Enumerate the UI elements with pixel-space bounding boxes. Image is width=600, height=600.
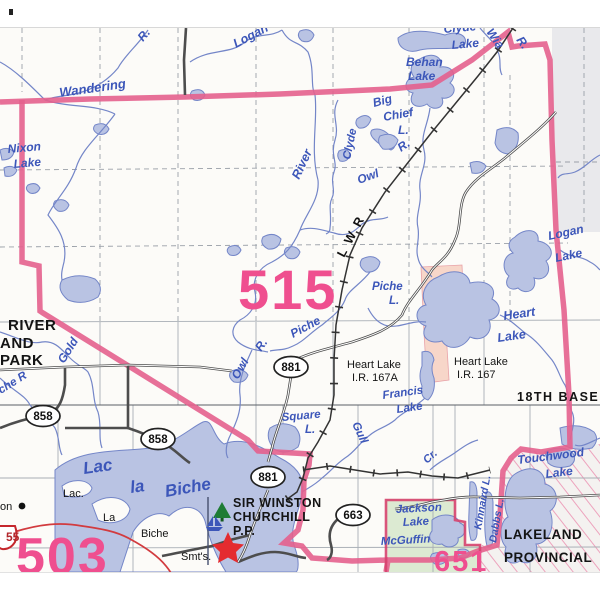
place-label: LAKELAND	[504, 527, 582, 542]
place-label: I.R. 167	[457, 369, 496, 381]
water-label: Behan	[406, 55, 443, 69]
water-label: Lake	[403, 516, 430, 529]
bottom-margin	[0, 573, 600, 600]
road-shield-881[interactable]: 881	[274, 357, 308, 378]
place-label: PARK	[0, 352, 43, 369]
place-label: Lac.	[63, 488, 84, 500]
place-label: I.R. 167A	[352, 372, 399, 384]
water-label: L.	[398, 123, 409, 137]
map-sheet-number: 515	[238, 258, 337, 321]
place-label: Smt's.	[181, 551, 211, 563]
shield-number: 881	[258, 472, 278, 484]
map-canvas: 515503651 WanderingR.LoganBehanLakeBigCh…	[0, 0, 600, 600]
place-label: Heart Lake	[454, 356, 508, 368]
water-label: L.	[305, 424, 315, 436]
shield-number: 858	[33, 411, 53, 423]
highway-55-number: 55	[6, 530, 20, 544]
place-label: CHURCHILL	[233, 510, 310, 524]
water-label: Piche	[372, 281, 403, 293]
shield-number: 858	[148, 434, 168, 446]
map-viewport[interactable]: 515503651 WanderingR.LoganBehanLakeBigCh…	[0, 0, 600, 600]
place-label: PROVINCIAL	[504, 550, 592, 565]
scan-artifact	[9, 9, 13, 15]
water-label: Jackson	[396, 502, 443, 516]
water-label: Lake	[408, 69, 436, 83]
water-label: Lake	[451, 36, 480, 52]
shield-number: 881	[281, 362, 301, 374]
road-shield-663[interactable]: 663	[336, 505, 370, 526]
top-margin	[0, 0, 600, 27]
place-label: La	[103, 512, 116, 524]
road-shield-881[interactable]: 881	[251, 467, 285, 488]
highway-55-shield-text: 55	[6, 530, 20, 544]
place-label: 18TH BASE	[517, 390, 599, 404]
water-label: la	[129, 476, 146, 497]
road-shield-858[interactable]: 858	[26, 406, 60, 427]
water-label: L.	[389, 295, 399, 307]
water-label: Lake	[13, 155, 42, 171]
town-dot-plamondon	[19, 503, 26, 510]
district-gray-area	[552, 27, 600, 232]
place-label: RIVER	[8, 317, 56, 334]
place-label: Heart Lake	[347, 359, 401, 371]
place-label: AND	[0, 335, 34, 352]
place-label: SIR WINSTON	[233, 496, 322, 510]
place-label: Biche	[141, 528, 169, 540]
water-label: Nixon	[7, 139, 41, 156]
road-shield-858[interactable]: 858	[141, 429, 175, 450]
shield-number: 663	[343, 510, 362, 522]
place-label: P.P.	[233, 524, 255, 538]
place-label: on	[0, 501, 12, 513]
